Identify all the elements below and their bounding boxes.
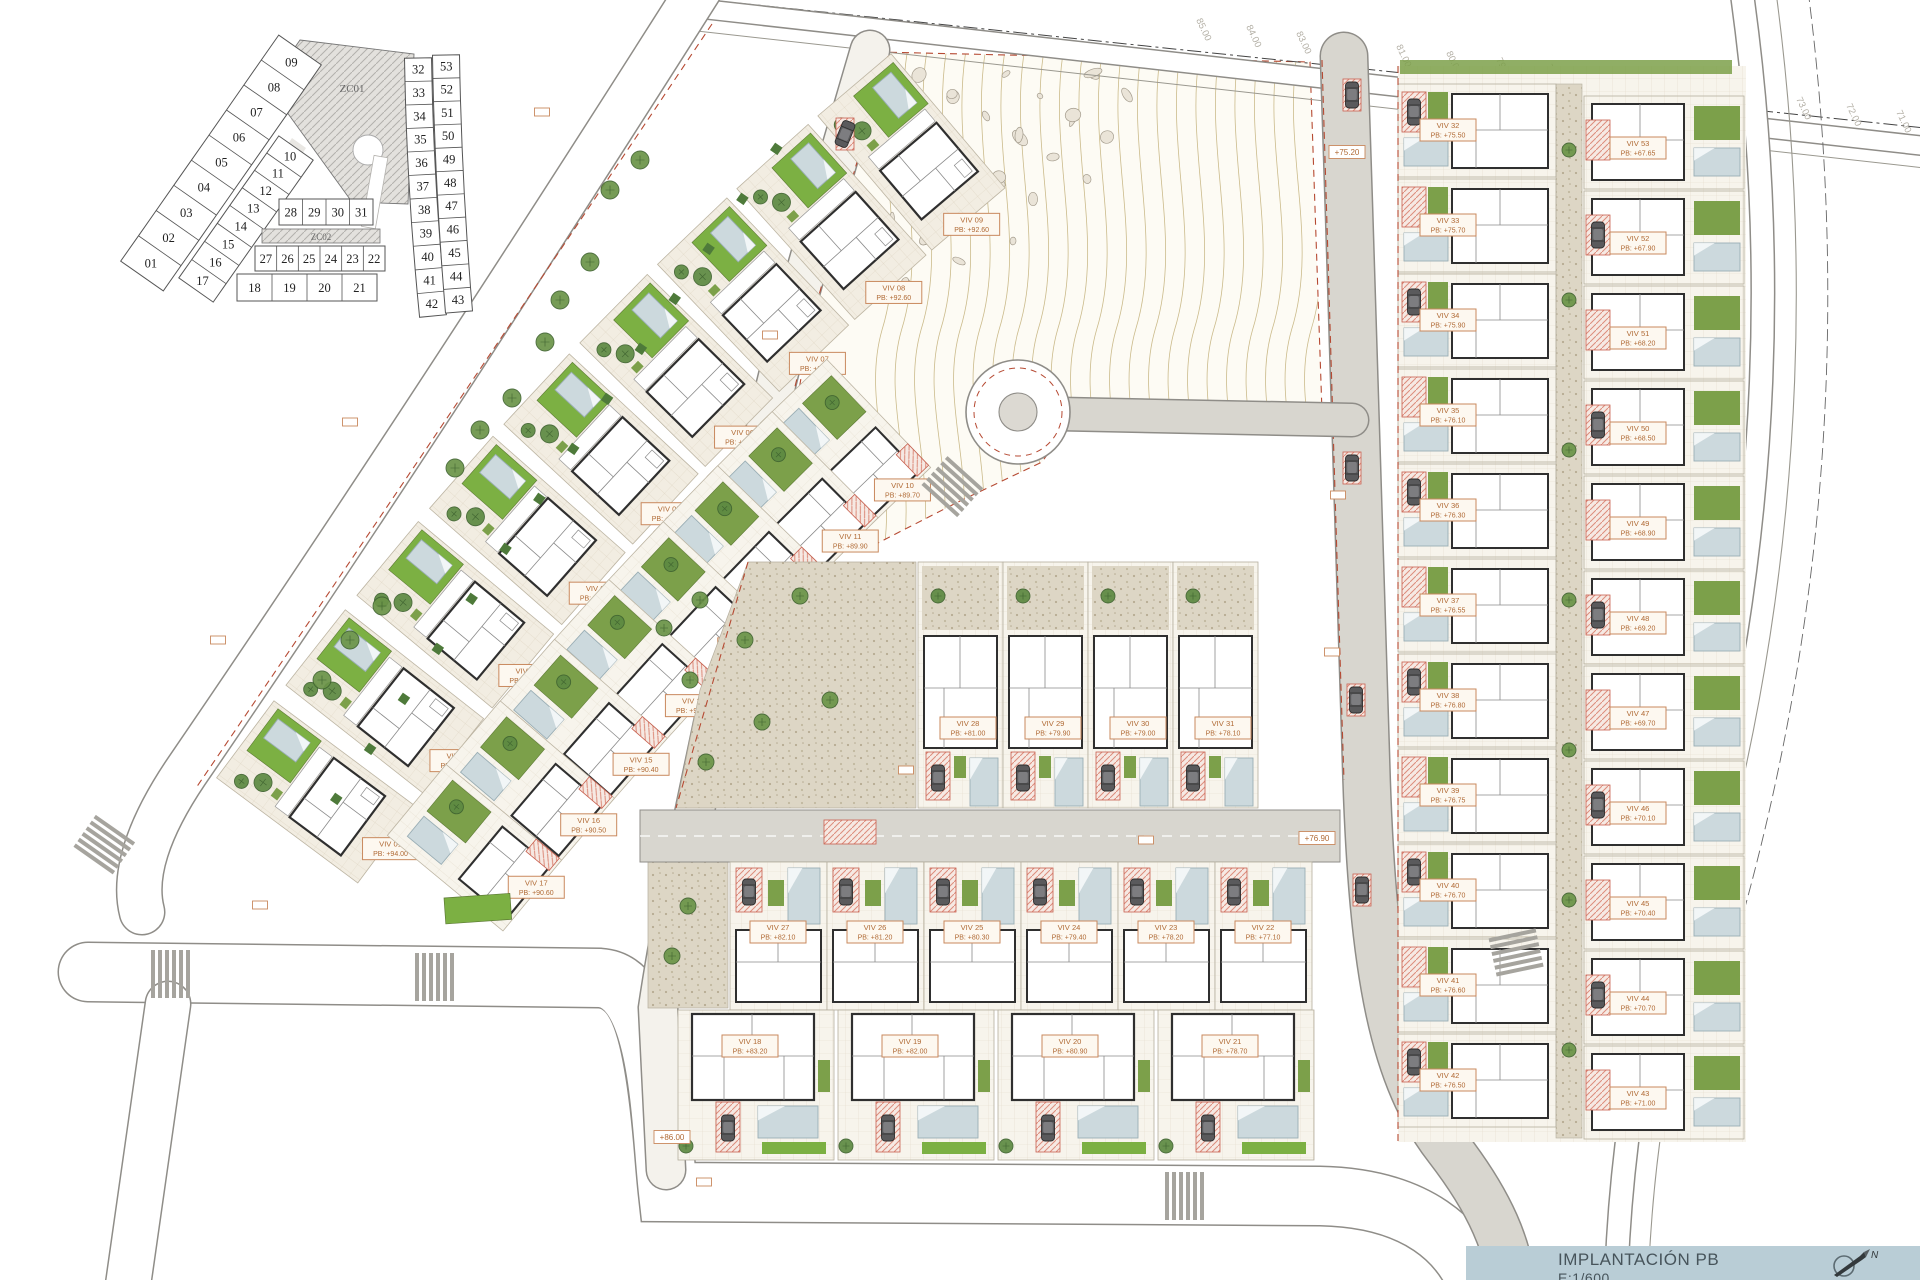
key-lot-53: 53 (440, 60, 453, 74)
plan-scale: E:1/600 (1558, 1269, 1719, 1280)
key-lot-06: 06 (233, 130, 246, 144)
villa-viv-21: VIV 21PB: +78.70 (1158, 1010, 1314, 1160)
villa-label-viv-46: VIV 46PB: +70.10 (1610, 802, 1666, 824)
villa-label-viv-24: VIV 24PB: +79.40 (1041, 921, 1097, 943)
svg-text:PB: +77.10: PB: +77.10 (1246, 935, 1281, 942)
svg-text:PB: +76.70: PB: +76.70 (1431, 893, 1466, 900)
svg-text:+86.00: +86.00 (660, 1133, 685, 1142)
svg-text:VIV 16: VIV 16 (577, 816, 600, 825)
key-lot-38: 38 (418, 203, 431, 217)
key-lot-42: 42 (426, 297, 439, 311)
key-lot-19: 19 (283, 281, 296, 295)
svg-text:VIV 25: VIV 25 (961, 923, 984, 932)
villa-viv-40: VIV 40PB: +76.70 (1398, 844, 1556, 937)
svg-text:VIV 29: VIV 29 (1042, 719, 1065, 728)
dimension-tag (1325, 648, 1340, 656)
key-lot-29: 29 (308, 206, 321, 220)
svg-text:VIV 45: VIV 45 (1627, 899, 1650, 908)
svg-text:VIV 22: VIV 22 (1252, 923, 1275, 932)
villa-label-viv-52: VIV 52PB: +67.90 (1610, 232, 1666, 254)
svg-text:PB: +70.10: PB: +70.10 (1621, 816, 1656, 823)
key-lot-08: 08 (268, 80, 281, 94)
svg-text:PB: +78.70: PB: +78.70 (1213, 1049, 1248, 1056)
key-lot-51: 51 (441, 106, 454, 120)
svg-text:VIV 46: VIV 46 (1627, 804, 1650, 813)
villa-viv-25: VIV 25PB: +80.30 (924, 862, 1021, 1010)
dimension-tag (535, 108, 550, 116)
key-lot-10: 10 (284, 150, 297, 164)
villa-label-viv-11: VIV 11PB: +89.90 (822, 530, 878, 552)
villa-label-viv-19: VIV 19PB: +82.00 (882, 1035, 938, 1057)
svg-text:VIV 19: VIV 19 (899, 1037, 922, 1046)
villa-label-viv-26: VIV 26PB: +81.20 (847, 921, 903, 943)
villa-label-viv-09: VIV 09PB: +92.60 (944, 213, 1000, 235)
svg-text:VIV 20: VIV 20 (1059, 1037, 1082, 1046)
svg-text:VIV 08: VIV 08 (882, 283, 905, 292)
villa-label-viv-49: VIV 49PB: +68.90 (1610, 517, 1666, 539)
key-lot-12: 12 (259, 184, 272, 198)
svg-text:VIV 42: VIV 42 (1437, 1071, 1460, 1080)
villa-viv-32: VIV 32PB: +75.50 (1398, 84, 1556, 177)
svg-text:PB: +76.10: PB: +76.10 (1431, 418, 1466, 425)
key-lot-13: 13 (247, 202, 260, 216)
elevation-marker: +75.20 (1329, 146, 1365, 159)
villa-viv-34: VIV 34PB: +75.90 (1398, 274, 1556, 367)
svg-text:VIV 21: VIV 21 (1219, 1037, 1242, 1046)
villa-label-viv-35: VIV 35PB: +76.10 (1420, 404, 1476, 426)
key-lot-20: 20 (318, 281, 331, 295)
svg-text:PB: +92.60: PB: +92.60 (954, 227, 989, 234)
svg-text:PB: +76.55: PB: +76.55 (1431, 608, 1466, 615)
svg-text:VIV 27: VIV 27 (767, 923, 790, 932)
svg-text:VIV 31: VIV 31 (1212, 719, 1235, 728)
svg-text:VIV 33: VIV 33 (1437, 216, 1460, 225)
key-lot-47: 47 (445, 199, 458, 213)
svg-text:PB: +90.40: PB: +90.40 (624, 767, 659, 774)
key-lot-32: 32 (412, 63, 425, 77)
svg-text:PB: +76.50: PB: +76.50 (1431, 1083, 1466, 1090)
key-lot-18: 18 (248, 281, 261, 295)
key-lot-17: 17 (196, 274, 209, 288)
villa-label-viv-22: VIV 22PB: +77.10 (1235, 921, 1291, 943)
villa-label-viv-39: VIV 39PB: +76.75 (1420, 784, 1476, 806)
svg-text:VIV 47: VIV 47 (1627, 709, 1650, 718)
elevation-marker: +86.00 (654, 1131, 690, 1144)
svg-text:PB: +70.70: PB: +70.70 (1621, 1006, 1656, 1013)
svg-text:+75.20: +75.20 (1335, 148, 1360, 157)
villa-viv-26: VIV 26PB: +81.20 (827, 862, 924, 1010)
svg-text:VIV 30: VIV 30 (1127, 719, 1150, 728)
title-block: IMPLANTACIÓN PB E:1/600 N (1466, 1246, 1920, 1280)
key-lot-28: 28 (285, 206, 298, 220)
svg-text:PB: +78.20: PB: +78.20 (1149, 935, 1184, 942)
villa-label-viv-08: VIV 08PB: +92.60 (866, 281, 922, 303)
svg-text:PB: +78.10: PB: +78.10 (1206, 731, 1241, 738)
key-lot-43: 43 (452, 293, 465, 307)
svg-text:PB: +70.40: PB: +70.40 (1621, 911, 1656, 918)
key-lot-04: 04 (198, 181, 211, 195)
svg-text:PB: +68.20: PB: +68.20 (1621, 341, 1656, 348)
svg-text:+76.90: +76.90 (1305, 834, 1330, 843)
svg-text:PB: +89.90: PB: +89.90 (833, 544, 868, 551)
svg-text:PB: +79.90: PB: +79.90 (1036, 731, 1071, 738)
villa-label-viv-10: VIV 10PB: +89.70 (874, 479, 930, 501)
svg-text:VIV 52: VIV 52 (1627, 234, 1650, 243)
villa-viv-28: VIV 28PB: +81.00 (918, 562, 1003, 808)
svg-text:VIV 35: VIV 35 (1437, 406, 1460, 415)
villa-label-viv-53: VIV 53PB: +67.65 (1610, 137, 1666, 159)
villa-label-viv-32: VIV 32PB: +75.50 (1420, 119, 1476, 141)
svg-text:VIV 23: VIV 23 (1155, 923, 1178, 932)
svg-text:VIV 48: VIV 48 (1627, 614, 1650, 623)
key-zone-zc01: ZC01 (339, 83, 364, 95)
villa-label-viv-34: VIV 34PB: +75.90 (1420, 309, 1476, 331)
villa-viv-42: VIV 42PB: +76.50 (1398, 1034, 1556, 1127)
key-lot-11: 11 (272, 167, 284, 181)
villa-viv-23: VIV 23PB: +78.20 (1118, 862, 1215, 1010)
key-lot-49: 49 (443, 152, 456, 166)
villa-label-viv-48: VIV 48PB: +69.20 (1610, 612, 1666, 634)
svg-text:PB: +75.70: PB: +75.70 (1431, 228, 1466, 235)
svg-text:PB: +83.20: PB: +83.20 (733, 1049, 768, 1056)
villa-label-viv-44: VIV 44PB: +70.70 (1610, 992, 1666, 1014)
villa-viv-22: VIV 22PB: +77.10 (1215, 862, 1312, 1010)
villa-label-viv-28: VIV 28PB: +81.00 (940, 717, 996, 739)
key-lot-03: 03 (180, 206, 193, 220)
svg-text:VIV 34: VIV 34 (1437, 311, 1460, 320)
site-plan-page: 85.0084.0083.0082.0081.0080.0079.0078.00… (0, 0, 1920, 1280)
villa-label-viv-29: VIV 29PB: +79.90 (1025, 717, 1081, 739)
key-plan-row: 28293031 (279, 199, 373, 225)
svg-text:PB: +75.90: PB: +75.90 (1431, 323, 1466, 330)
key-lot-46: 46 (447, 223, 460, 237)
dimension-tag (1331, 491, 1346, 499)
villa-viv-36: VIV 36PB: +76.30 (1398, 464, 1556, 557)
svg-text:PB: +76.75: PB: +76.75 (1431, 798, 1466, 805)
dimension-tag (1139, 836, 1154, 844)
villa-viv-29: VIV 29PB: +79.90 (1003, 562, 1088, 808)
key-lot-44: 44 (450, 270, 463, 284)
villa-label-viv-41: VIV 41PB: +76.60 (1420, 974, 1476, 996)
svg-text:VIV 50: VIV 50 (1627, 424, 1650, 433)
key-lot-16: 16 (209, 255, 222, 269)
svg-text:PB: +76.60: PB: +76.60 (1431, 988, 1466, 995)
svg-text:VIV 49: VIV 49 (1627, 519, 1650, 528)
roundabout (966, 360, 1070, 464)
svg-text:VIV 10: VIV 10 (891, 481, 914, 490)
villa-label-viv-31: VIV 31PB: +78.10 (1195, 717, 1251, 739)
elevation-marker: +76.90 (1299, 832, 1335, 845)
svg-text:PB: +82.10: PB: +82.10 (761, 935, 796, 942)
svg-text:VIV 28: VIV 28 (957, 719, 980, 728)
villa-label-viv-16: VIV 16PB: +90.50 (561, 814, 617, 836)
key-lot-27: 27 (260, 252, 273, 266)
key-lot-33: 33 (413, 86, 426, 100)
villa-label-viv-27: VIV 27PB: +82.10 (750, 921, 806, 943)
villa-viv-35: VIV 35PB: +76.10 (1398, 369, 1556, 462)
key-plan-row: 272625242322 (255, 246, 385, 271)
villa-label-viv-25: VIV 25PB: +80.30 (944, 921, 1000, 943)
svg-text:PB: +67.90: PB: +67.90 (1621, 246, 1656, 253)
key-lot-37: 37 (417, 180, 430, 194)
svg-text:PB: +92.60: PB: +92.60 (876, 295, 911, 302)
villa-label-viv-45: VIV 45PB: +70.40 (1610, 897, 1666, 919)
dimension-tag (253, 901, 268, 909)
svg-text:VIV 37: VIV 37 (1437, 596, 1460, 605)
svg-text:PB: +89.70: PB: +89.70 (885, 492, 920, 499)
plan-title: IMPLANTACIÓN PB (1558, 1250, 1719, 1269)
svg-text:PB: +67.65: PB: +67.65 (1621, 151, 1656, 158)
center-zone: VIV 28PB: +81.00VIV 29PB: +79.90VIV 30PB… (640, 562, 1340, 1160)
svg-text:PB: +69.70: PB: +69.70 (1621, 721, 1656, 728)
key-lot-22: 22 (368, 252, 381, 266)
north-arrow-icon: N (1826, 1248, 1882, 1278)
svg-text:PB: +80.90: PB: +80.90 (1053, 1049, 1088, 1056)
key-lot-34: 34 (413, 109, 426, 123)
svg-text:PB: +71.00: PB: +71.00 (1621, 1101, 1656, 1108)
svg-text:N: N (1871, 1250, 1879, 1261)
villa-label-viv-47: VIV 47PB: +69.70 (1610, 707, 1666, 729)
key-lot-31: 31 (355, 206, 368, 220)
villa-label-viv-50: VIV 50PB: +68.50 (1610, 422, 1666, 444)
svg-text:PB: +79.00: PB: +79.00 (1121, 731, 1156, 738)
svg-text:VIV 53: VIV 53 (1627, 139, 1650, 148)
dimension-tag (763, 331, 778, 339)
svg-text:PB: +69.20: PB: +69.20 (1621, 626, 1656, 633)
villa-label-viv-51: VIV 51PB: +68.20 (1610, 327, 1666, 349)
svg-text:VIV 38: VIV 38 (1437, 691, 1460, 700)
key-lot-52: 52 (440, 83, 453, 97)
svg-text:VIV 17: VIV 17 (525, 878, 548, 887)
key-lot-26: 26 (281, 252, 294, 266)
villa-viv-27: VIV 27PB: +82.10 (730, 862, 827, 1010)
key-lot-50: 50 (442, 129, 455, 143)
villa-viv-20: VIV 20PB: +80.90 (998, 1010, 1154, 1160)
svg-text:VIV 41: VIV 41 (1437, 976, 1460, 985)
villa-viv-30: VIV 30PB: +79.00 (1088, 562, 1173, 808)
svg-text:PB: +79.40: PB: +79.40 (1052, 935, 1087, 942)
svg-text:VIV 43: VIV 43 (1627, 1089, 1650, 1098)
svg-text:PB: +81.20: PB: +81.20 (858, 935, 893, 942)
villa-label-viv-36: VIV 36PB: +76.30 (1420, 499, 1476, 521)
villa-label-viv-37: VIV 37PB: +76.55 (1420, 594, 1476, 616)
dimension-tag (899, 766, 914, 774)
svg-text:PB: +68.50: PB: +68.50 (1621, 436, 1656, 443)
svg-text:PB: +76.80: PB: +76.80 (1431, 703, 1466, 710)
villa-label-viv-18: VIV 18PB: +83.20 (722, 1035, 778, 1057)
svg-text:PB: +75.50: PB: +75.50 (1431, 133, 1466, 140)
svg-text:PB: +68.90: PB: +68.90 (1621, 531, 1656, 538)
dimension-tag (211, 636, 226, 644)
zc02-road (640, 810, 1340, 862)
key-lot-30: 30 (332, 206, 345, 220)
key-lot-45: 45 (448, 246, 461, 260)
svg-text:VIV 40: VIV 40 (1437, 881, 1460, 890)
right-zone: VIV 32PB: +75.50VIV 33PB: +75.70VIV 34PB… (1398, 60, 1746, 1142)
villa-viv-39: VIV 39PB: +76.75 (1398, 749, 1556, 842)
villa-label-viv-33: VIV 33PB: +75.70 (1420, 214, 1476, 236)
svg-text:VIV 15: VIV 15 (630, 755, 653, 764)
svg-text:VIV 26: VIV 26 (864, 923, 887, 932)
key-lot-09: 09 (285, 55, 298, 69)
svg-text:VIV 51: VIV 51 (1627, 329, 1650, 338)
key-lot-05: 05 (215, 156, 228, 170)
villa-viv-33: VIV 33PB: +75.70 (1398, 179, 1556, 272)
svg-text:VIV 39: VIV 39 (1437, 786, 1460, 795)
villa-viv-31: VIV 31PB: +78.10 (1173, 562, 1258, 808)
key-lot-36: 36 (415, 156, 428, 170)
villa-viv-19: VIV 19PB: +82.00 (838, 1010, 994, 1160)
key-zone-zc02: ZC02 (311, 232, 332, 242)
svg-text:VIV 44: VIV 44 (1627, 994, 1650, 1003)
svg-text:VIV 24: VIV 24 (1058, 923, 1081, 932)
dimension-tag (697, 1178, 712, 1186)
villa-label-viv-17: VIV 17PB: +90.60 (508, 876, 564, 898)
key-lot-25: 25 (303, 252, 316, 266)
svg-text:VIV 32: VIV 32 (1437, 121, 1460, 130)
villa-label-viv-43: VIV 43PB: +71.00 (1610, 1087, 1666, 1109)
key-lot-48: 48 (444, 176, 457, 190)
site-plan-svg: 85.0084.0083.0082.0081.0080.0079.0078.00… (0, 0, 1920, 1280)
svg-text:VIV 18: VIV 18 (739, 1037, 762, 1046)
villa-label-viv-38: VIV 38PB: +76.80 (1420, 689, 1476, 711)
key-lot-15: 15 (222, 237, 235, 251)
svg-text:PB: +90.60: PB: +90.60 (519, 890, 554, 897)
svg-text:PB: +76.30: PB: +76.30 (1431, 513, 1466, 520)
villa-label-viv-20: VIV 20PB: +80.90 (1042, 1035, 1098, 1057)
villa-label-viv-15: VIV 15PB: +90.40 (613, 753, 669, 775)
villa-label-viv-30: VIV 30PB: +79.00 (1110, 717, 1166, 739)
key-lot-39: 39 (420, 226, 433, 240)
villa-label-viv-40: VIV 40PB: +76.70 (1420, 879, 1476, 901)
svg-text:PB: +90.50: PB: +90.50 (571, 827, 606, 834)
svg-text:PB: +82.00: PB: +82.00 (893, 1049, 928, 1056)
key-lot-21: 21 (353, 281, 366, 295)
key-lot-24: 24 (325, 252, 338, 266)
svg-text:PB: +94.00: PB: +94.00 (373, 851, 408, 858)
svg-text:PB: +81.00: PB: +81.00 (951, 731, 986, 738)
key-lot-02: 02 (162, 231, 175, 245)
key-lot-01: 01 (145, 256, 158, 270)
villa-viv-37: VIV 37PB: +76.55 (1398, 559, 1556, 652)
villa-label-viv-23: VIV 23PB: +78.20 (1138, 921, 1194, 943)
key-lot-40: 40 (421, 250, 434, 264)
svg-text:VIV 36: VIV 36 (1437, 501, 1460, 510)
key-lot-23: 23 (346, 252, 359, 266)
key-lot-41: 41 (423, 274, 436, 288)
svg-text:VIV 11: VIV 11 (839, 532, 861, 541)
key-lot-07: 07 (250, 105, 263, 119)
villa-viv-38: VIV 38PB: +76.80 (1398, 654, 1556, 747)
key-plan-row: 18192021 (237, 274, 377, 301)
villa-viv-18: VIV 18PB: +83.20 (678, 1010, 834, 1160)
key-lot-14: 14 (234, 219, 247, 233)
villa-viv-24: VIV 24PB: +79.40 (1021, 862, 1118, 1010)
villa-label-viv-42: VIV 42PB: +76.50 (1420, 1069, 1476, 1091)
svg-text:VIV 09: VIV 09 (960, 215, 983, 224)
svg-text:PB: +80.30: PB: +80.30 (955, 935, 990, 942)
villa-label-viv-21: VIV 21PB: +78.70 (1202, 1035, 1258, 1057)
key-lot-35: 35 (414, 133, 427, 147)
dimension-tag (343, 418, 358, 426)
